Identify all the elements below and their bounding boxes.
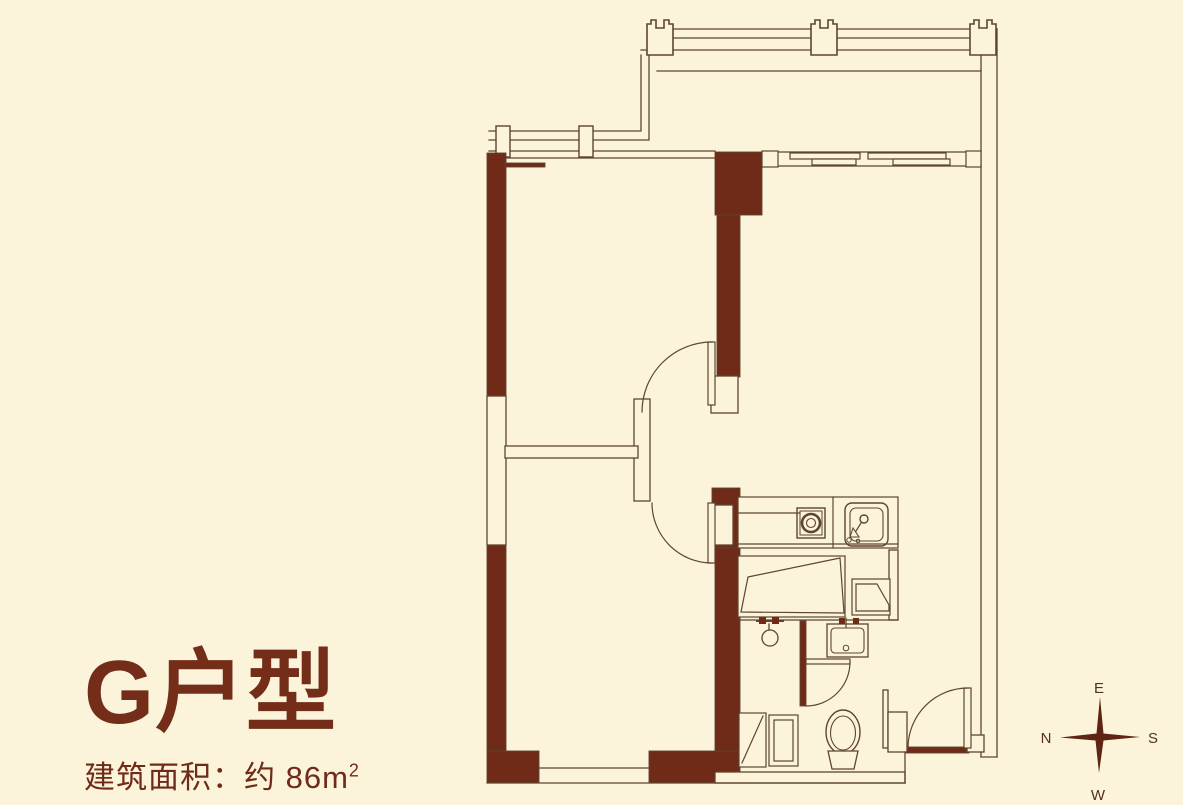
toilet-icon — [826, 710, 860, 769]
cabinet-counter — [738, 556, 898, 620]
compass-west-label: W — [1091, 787, 1106, 804]
unit-title: G户型 — [84, 648, 360, 738]
floor-plan-page: E S W N G户型 建筑面积：约 86m2 — [0, 0, 1183, 805]
kitchen-counter — [738, 497, 898, 548]
compass-east-label: E — [1094, 680, 1104, 697]
washing-machine — [739, 713, 798, 767]
compass-south-label: S — [1148, 730, 1158, 747]
bedroom-door-arc-lower — [652, 503, 715, 563]
area-label: 建筑面积：约 86m2 — [84, 752, 360, 797]
balcony-railing — [489, 29, 997, 757]
entry-door-arc — [908, 688, 971, 748]
shower-head-icon — [757, 617, 783, 646]
area-label-text: 建筑面积：约 86m — [84, 760, 349, 795]
exterior-walls — [487, 152, 969, 783]
compass-rose-icon: E S W N — [1041, 680, 1158, 804]
washbasin-icon — [827, 618, 868, 657]
bedroom-door-arc-upper — [642, 342, 715, 412]
compass-north-label: N — [1041, 730, 1052, 747]
sliding-balcony-door — [762, 151, 981, 167]
title-block: G户型 建筑面积：约 86m2 — [84, 648, 360, 797]
bathroom-door-arc — [806, 659, 850, 706]
area-superscript: 2 — [349, 761, 360, 781]
